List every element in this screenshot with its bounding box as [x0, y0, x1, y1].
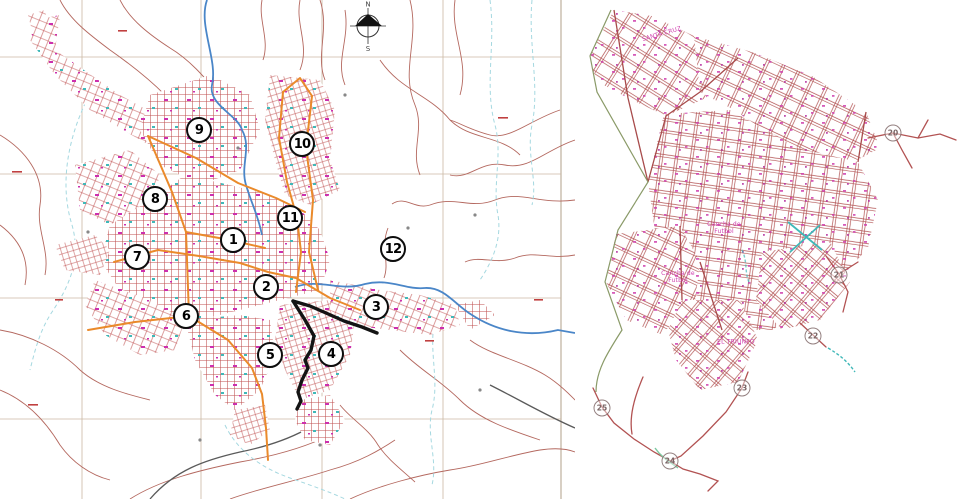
route-marker-23: 23 [734, 380, 751, 397]
street-label: EL TRIUNFO [717, 340, 755, 347]
street-blocks [588, 10, 880, 390]
zone-marker-12: 12 [380, 236, 406, 262]
street-label: Cancha de Futbol [661, 271, 695, 285]
zone-marker-10: 10 [289, 131, 315, 157]
zone-marker-7: 7 [124, 244, 150, 270]
zone-marker-3: 3 [363, 294, 389, 320]
zone-marker-6: 6 [173, 303, 199, 329]
left-map-canvas: N S [0, 0, 575, 499]
compass-rose: N S [350, 1, 386, 54]
zone-marker-4: 4 [318, 341, 344, 367]
route-marker-22: 22 [805, 328, 822, 345]
route-marker-24: 24 [662, 453, 679, 470]
zone-marker-2: 2 [253, 274, 279, 300]
route-marker-21: 21 [831, 267, 848, 284]
zone-marker-11: 11 [277, 205, 303, 231]
zone-marker-8: 8 [142, 186, 168, 212]
compass-south-label: S [366, 45, 371, 53]
route-marker-20: 20 [885, 125, 902, 142]
urban-blocks [28, 10, 495, 445]
street-label: Cancha de Futbol [707, 222, 741, 236]
route-marker-25: 25 [594, 400, 611, 417]
zone-marker-9: 9 [186, 117, 212, 143]
right-map-canvas [575, 0, 960, 499]
map-sheet: N S [0, 0, 960, 499]
zone-marker-5: 5 [257, 342, 283, 368]
compass-north-label: N [365, 1, 370, 9]
zone-marker-1: 1 [220, 227, 246, 253]
